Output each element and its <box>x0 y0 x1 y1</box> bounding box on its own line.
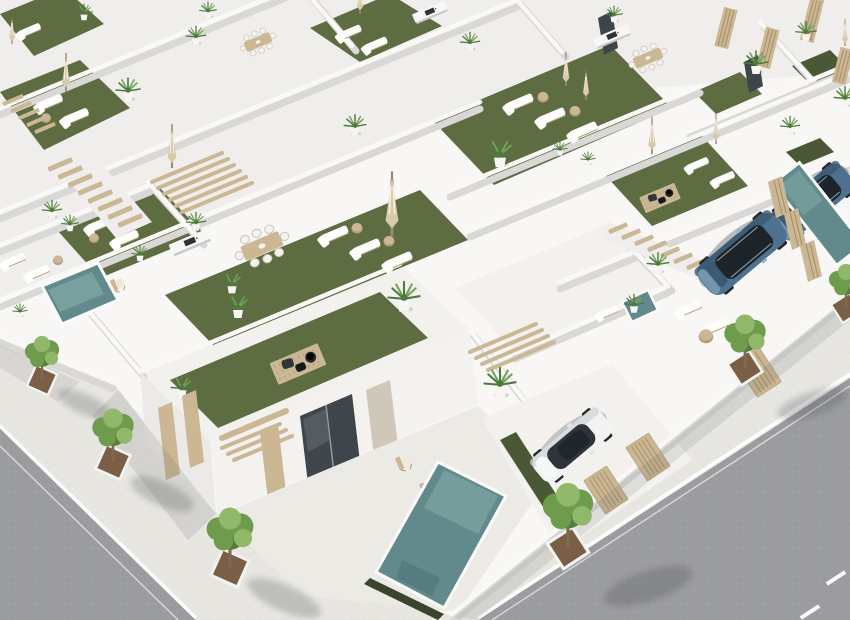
render-image <box>0 0 850 620</box>
villa-development-render <box>0 0 850 620</box>
